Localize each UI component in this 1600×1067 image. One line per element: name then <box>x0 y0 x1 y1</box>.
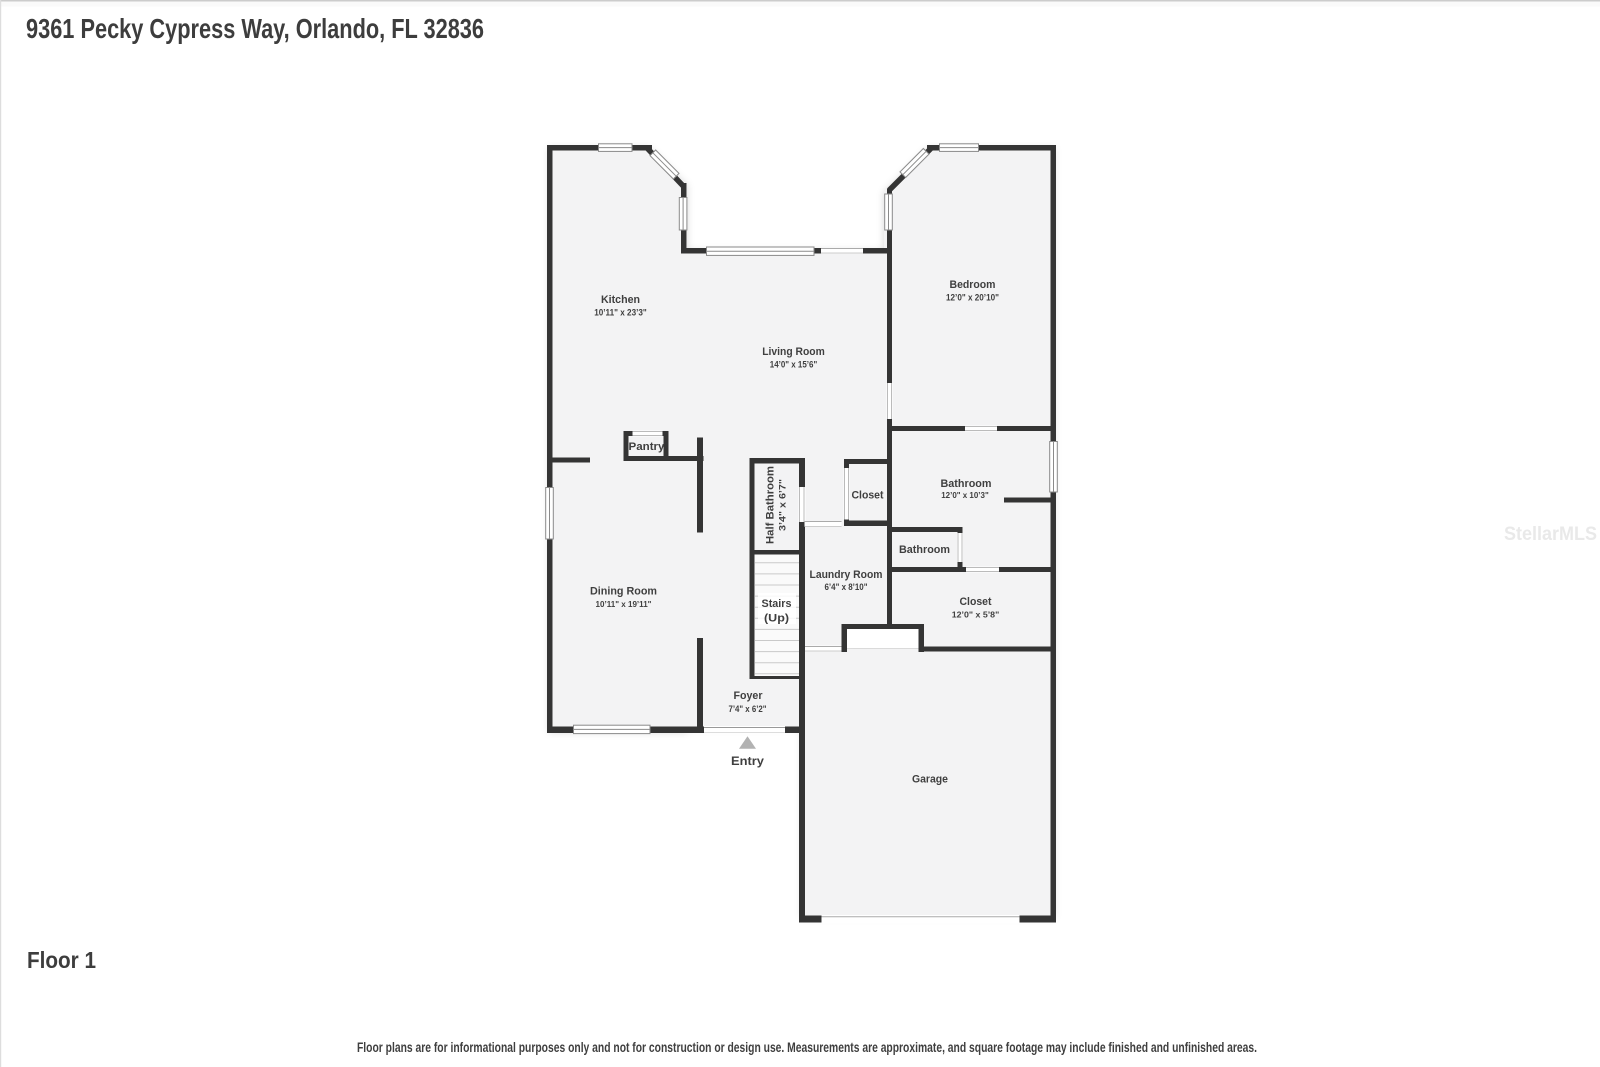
svg-text:Closet: Closet <box>852 490 884 502</box>
svg-text:10’11" x 19’11": 10’11" x 19’11" <box>596 599 652 609</box>
svg-text:9361 Pecky Cypress Way, Orland: 9361 Pecky Cypress Way, Orlando, FL 3283… <box>26 13 484 44</box>
svg-text:Floor 1: Floor 1 <box>27 947 96 973</box>
svg-text:Foyer: Foyer <box>734 690 764 702</box>
svg-text:Garage: Garage <box>912 774 948 786</box>
svg-text:12’0" x 20’10": 12’0" x 20’10" <box>946 293 999 303</box>
svg-text:6’4" x 8’10": 6’4" x 8’10" <box>825 582 868 592</box>
svg-text:Floor plans are for informatio: Floor plans are for informational purpos… <box>357 1040 1257 1055</box>
svg-text:3’4" x 6’7": 3’4" x 6’7" <box>778 479 788 531</box>
svg-text:Entry: Entry <box>731 754 764 768</box>
svg-text:Pantry: Pantry <box>629 441 666 453</box>
svg-text:Living Room: Living Room <box>762 346 825 358</box>
svg-text:Laundry Room: Laundry Room <box>810 569 883 581</box>
svg-text:(Up): (Up) <box>764 613 789 625</box>
svg-text:StellarMLS: StellarMLS <box>1504 524 1597 545</box>
svg-text:Stairs: Stairs <box>762 598 792 610</box>
svg-text:Bedroom: Bedroom <box>950 279 996 291</box>
svg-text:Half Bathroom: Half Bathroom <box>765 466 777 544</box>
svg-text:7’4" x 6’2": 7’4" x 6’2" <box>729 704 767 714</box>
svg-text:Bathroom: Bathroom <box>941 478 992 490</box>
svg-text:12’0" x 5’8": 12’0" x 5’8" <box>952 610 1000 620</box>
svg-text:10’11" x 23’3": 10’11" x 23’3" <box>594 308 647 318</box>
svg-text:Closet: Closet <box>960 596 992 608</box>
svg-text:Bathroom: Bathroom <box>899 544 950 556</box>
svg-text:12’0" x 10’3": 12’0" x 10’3" <box>941 490 989 500</box>
svg-text:Dining Room: Dining Room <box>590 586 657 598</box>
svg-text:Kitchen: Kitchen <box>601 294 640 306</box>
svg-text:14’0" x 15’6": 14’0" x 15’6" <box>770 360 818 370</box>
